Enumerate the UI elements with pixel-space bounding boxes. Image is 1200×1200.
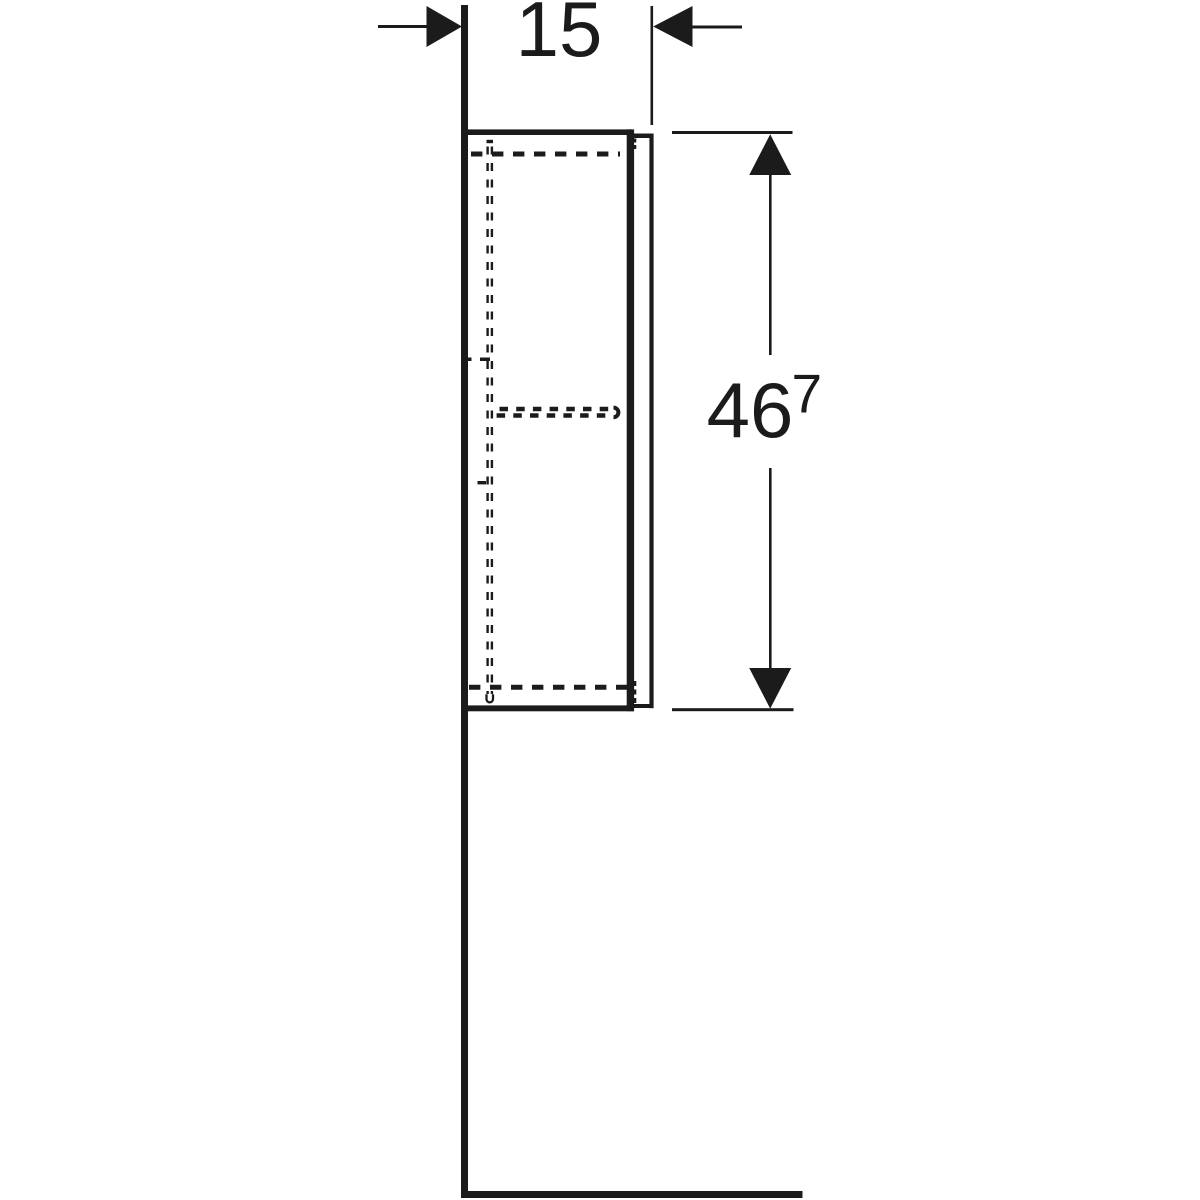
svg-text:7: 7 — [792, 363, 823, 425]
svg-text:15: 15 — [516, 0, 603, 73]
svg-text:46: 46 — [707, 366, 794, 454]
